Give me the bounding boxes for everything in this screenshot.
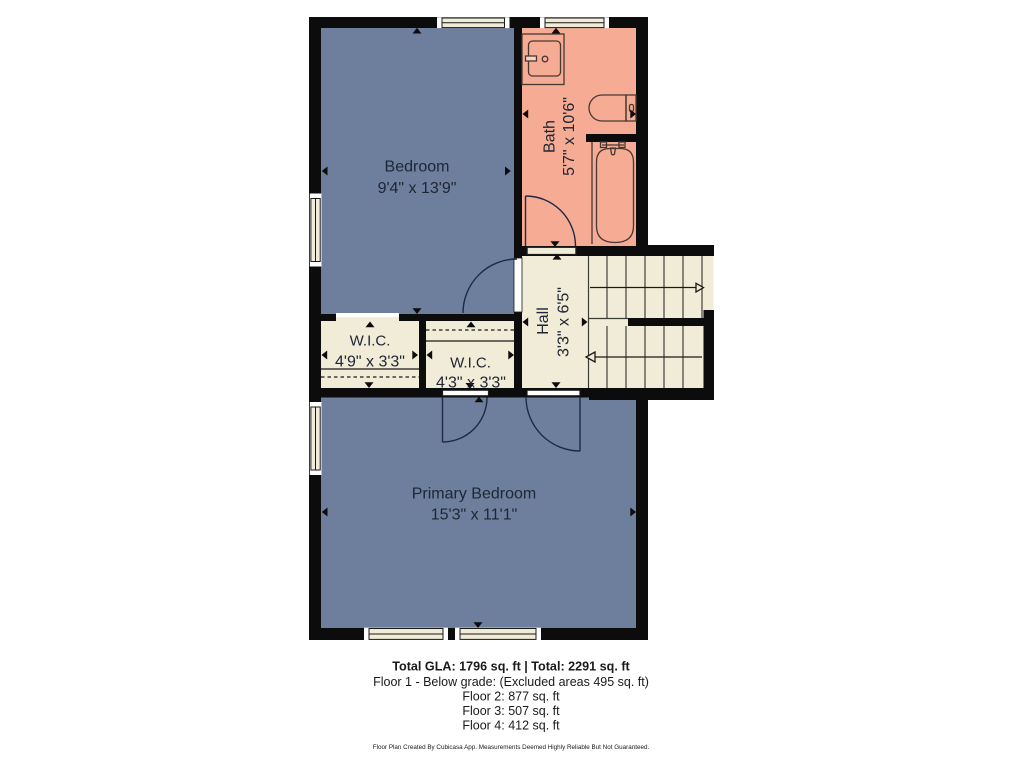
svg-text:Floor 4: 412 sq. ft: Floor 4: 412 sq. ft	[462, 719, 560, 733]
svg-text:Floor 2: 877 sq. ft: Floor 2: 877 sq. ft	[462, 690, 560, 704]
svg-text:Bath: Bath	[542, 120, 559, 153]
svg-text:W.I.C.: W.I.C.	[350, 333, 391, 350]
svg-text:W.I.C.: W.I.C.	[450, 355, 491, 372]
svg-text:Hall: Hall	[535, 307, 552, 335]
svg-text:3'3" x 6'5": 3'3" x 6'5"	[556, 287, 573, 357]
svg-text:9'4" x 13'9": 9'4" x 13'9"	[378, 180, 457, 197]
svg-text:Primary Bedroom: Primary Bedroom	[412, 486, 536, 503]
svg-text:5'7" x 10'6": 5'7" x 10'6"	[561, 97, 578, 176]
svg-text:15'3" x 11'1": 15'3" x 11'1"	[431, 507, 518, 524]
svg-text:4'3" x 3'3": 4'3" x 3'3"	[436, 375, 506, 392]
svg-text:Floor 3: 507 sq. ft: Floor 3: 507 sq. ft	[462, 704, 560, 718]
svg-text:4'9" x 3'3": 4'9" x 3'3"	[335, 354, 405, 371]
svg-text:Floor Plan Created By Cubicasa: Floor Plan Created By Cubicasa App. Meas…	[373, 744, 650, 751]
svg-text:Bedroom: Bedroom	[385, 159, 450, 176]
svg-text:Total GLA: 1796 sq. ft | Total: Total GLA: 1796 sq. ft | Total: 2291 sq.…	[392, 660, 630, 674]
svg-text:Floor 1 - Below grade: (Exclud: Floor 1 - Below grade: (Excluded areas 4…	[373, 675, 649, 689]
